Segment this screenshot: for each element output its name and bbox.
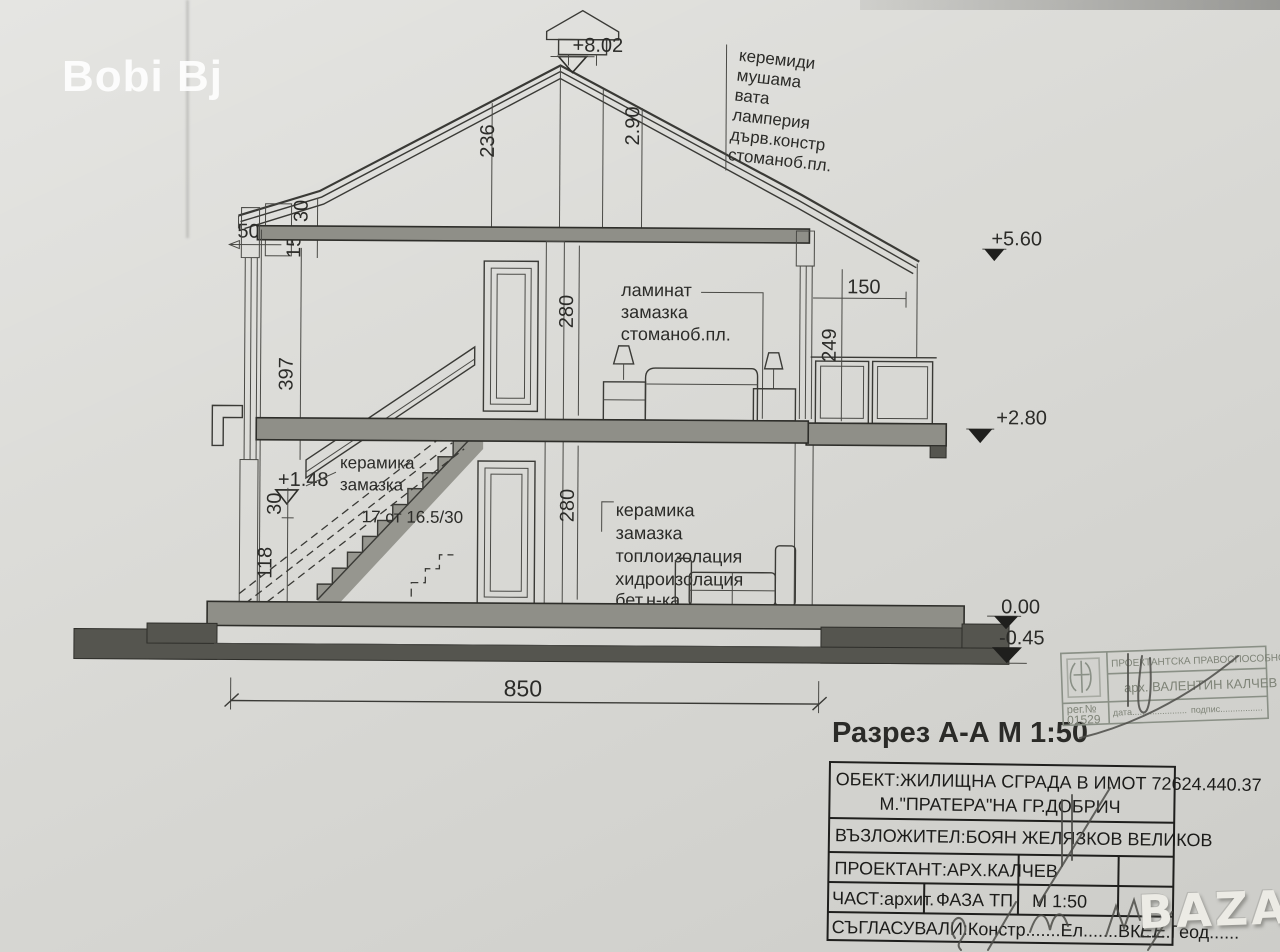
bedroom-furniture xyxy=(603,346,795,421)
dim-eaves-edge: 30 xyxy=(291,200,313,222)
dim-roof-height: 2.90 xyxy=(622,106,644,145)
balcony: 150 249 xyxy=(806,263,947,458)
title-block-designer: ПРОЕКТАНТ:АРХ.КАЛЧЕВ xyxy=(834,858,1058,881)
foundation xyxy=(74,601,1009,665)
stamp-logo-icon xyxy=(1067,658,1100,697)
roof-notes: керемиди мушама вата ламперия дърв.конст… xyxy=(726,45,844,176)
stamp-signature-label: подпис................. xyxy=(1191,702,1263,715)
dim-upper-room: 280 xyxy=(556,295,578,329)
upper-floor-note-3: стоманоб.пл. xyxy=(621,324,731,345)
dim-attic-wall: 397 xyxy=(275,357,297,391)
landing-note-1: керамика xyxy=(340,453,415,472)
section-drawing: +8.02 236 2.90 керемиди мушама вата ламп… xyxy=(0,0,1280,952)
level-upper-marker: +2.80 xyxy=(966,407,1047,443)
title-block-phase: ФАЗА ТП xyxy=(936,889,1013,910)
drawing-title: Разрез А-А М 1:50 xyxy=(832,717,1088,749)
lamp-icon xyxy=(764,353,782,389)
title-block-object-line2: М."ПРАТЕРА"НА ГР.ДОБРИЧ xyxy=(879,794,1120,817)
roof-note-3: вата xyxy=(734,85,771,108)
ground-note-1: керамика xyxy=(616,500,696,520)
landing-note-2: замазка xyxy=(340,475,404,494)
overall-dimension: 850 xyxy=(225,673,827,713)
photo-credit-watermark: Bobi Bj xyxy=(62,52,223,102)
architect-stamp: ПРОЕКТАНТСКА ПРАВОСПОСОБНОСТ арх. ВАЛЕНТ… xyxy=(1061,645,1280,727)
level-eaves-marker: +5.60 xyxy=(982,228,1042,261)
ground-note-2: замазка xyxy=(616,523,684,543)
upper-floor-notes: ламинат замазка стоманоб.пл. xyxy=(620,280,763,419)
dim-balcony-rail: 249 xyxy=(819,328,841,362)
roof-dimension-lines: 236 2.90 xyxy=(476,65,644,228)
dim-lower-room: 280 xyxy=(557,489,579,523)
dim-roof-inner-height: 236 xyxy=(477,124,499,158)
dim-balcony-depth: 150 xyxy=(847,276,881,298)
level-upper-floor: +2.80 xyxy=(996,407,1047,429)
building-section: +8.02 236 2.90 керемиди мушама вата ламп… xyxy=(74,8,1050,715)
dim-total-width: 850 xyxy=(504,675,543,701)
left-wall xyxy=(211,207,261,605)
level-ground: 0.00 xyxy=(1001,596,1040,618)
stamp-header: ПРОЕКТАНТСКА ПРАВОСПОСОБНОСТ xyxy=(1111,652,1280,670)
upper-floor-slab xyxy=(256,418,808,443)
stair-note: 17 ст 16.5/30 xyxy=(362,507,463,527)
title-block-object-line1: ОБЕКТ:ЖИЛИЩНА СГРАДА В ИМОТ 72624.440.37 xyxy=(836,769,1262,795)
upper-floor-note-2: замазка xyxy=(621,302,689,322)
lower-door xyxy=(477,461,535,604)
ground-note-3: топлоизолация xyxy=(615,546,742,567)
stamp-date-label: дата...................... xyxy=(1113,705,1187,718)
dim-plinth: 30 xyxy=(264,493,286,515)
attic-floor-slab xyxy=(257,226,809,243)
dim-eaves-overhang: 50 xyxy=(237,221,259,243)
stamp-reg-number: 01529 xyxy=(1067,712,1101,727)
title-block-part: ЧАСТ:архит. xyxy=(832,888,934,909)
level-eaves: +5.60 xyxy=(991,228,1042,250)
upper-floor-note-1: ламинат xyxy=(621,280,692,300)
upper-door xyxy=(483,261,538,411)
right-wall xyxy=(794,231,814,606)
nightstand-left xyxy=(603,382,645,420)
bed xyxy=(645,368,757,421)
lamp-icon xyxy=(614,346,634,380)
level-footing: -0.45 xyxy=(999,627,1045,649)
marketplace-logo-watermark: BAZAR xyxy=(1137,879,1280,940)
title-block-client: ВЪЗЛОЖИТЕЛ:БОЯН ЖЕЛЯЗКОВ ВЕЛИКОВ xyxy=(835,825,1213,850)
ground-floor-notes: керамика замазка топлоизолация хидроизол… xyxy=(601,500,744,611)
level-landing: +1.48 xyxy=(278,469,329,491)
level-ridge: +8.02 xyxy=(573,35,624,57)
nightstand-right xyxy=(753,389,795,421)
